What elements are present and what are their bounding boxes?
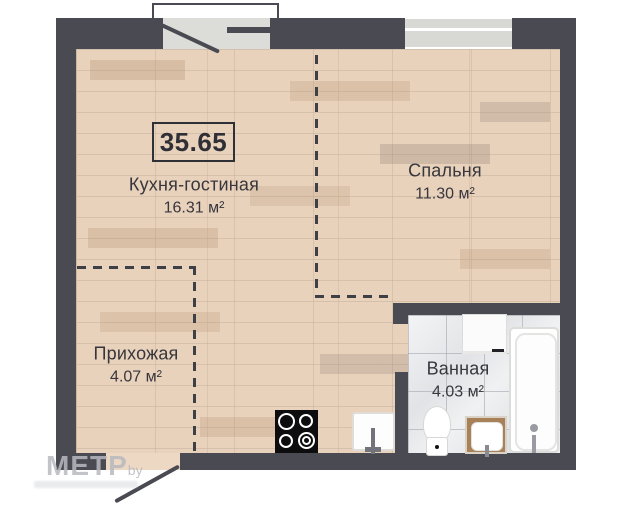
room-area: 11.30 м² xyxy=(408,186,482,204)
plank-shade xyxy=(290,81,410,101)
total-area-value: 35.65 xyxy=(160,127,228,158)
floor-plan: 35.65 Кухня-гостиная 16.31 м² Спальня 11… xyxy=(0,0,635,512)
outer-wall-bottom-right xyxy=(180,453,576,470)
outer-wall-right xyxy=(560,18,576,470)
plank-shade xyxy=(480,102,550,122)
outer-wall-top-left xyxy=(56,18,163,49)
bathroom-wall-door-jamb xyxy=(393,315,408,324)
bathroom-wall-left xyxy=(395,372,408,453)
total-area-box: 35.65 xyxy=(152,122,235,162)
bathtub-faucet-dot xyxy=(530,424,538,432)
room-area: 16.31 м² xyxy=(129,200,259,218)
kitchen-faucet-base xyxy=(365,447,381,452)
stove-icon xyxy=(275,410,318,453)
bedroom-boundary-bottom xyxy=(315,295,395,298)
watermark: МЕТРby xyxy=(46,450,143,482)
bedroom-window xyxy=(405,18,512,49)
washing-machine-icon xyxy=(462,314,507,354)
plank-shade xyxy=(100,312,220,332)
stove-burner xyxy=(299,414,313,428)
balcony-window-sash xyxy=(227,27,270,33)
toilet-button xyxy=(435,445,439,449)
room-label-bedroom: Спальня 11.30 м² xyxy=(408,161,482,204)
room-name: Кухня-гостиная xyxy=(129,175,259,196)
hallway-boundary-right xyxy=(193,266,196,453)
room-label-kitchen-living: Кухня-гостиная 16.31 м² xyxy=(129,175,259,218)
room-label-hallway: Прихожая 4.07 м² xyxy=(93,344,178,387)
washing-machine-handle xyxy=(492,349,504,352)
watermark-tagline-blur xyxy=(34,481,138,488)
plank-shade xyxy=(460,249,550,269)
stove-burner xyxy=(279,434,293,448)
outer-wall-top-right xyxy=(512,18,576,49)
room-area: 4.03 м² xyxy=(427,384,490,402)
room-name: Спальня xyxy=(408,161,482,182)
plank-shade xyxy=(90,60,185,80)
outer-wall-left xyxy=(56,18,76,470)
stove-burner-inner-ring xyxy=(302,436,311,445)
balcony-outline xyxy=(152,3,279,18)
window-pane-inner xyxy=(405,31,512,47)
watermark-suffix: by xyxy=(128,462,143,478)
room-name: Прихожая xyxy=(93,344,178,365)
toilet-icon xyxy=(423,406,451,456)
stove-burner-double xyxy=(298,432,315,449)
room-name: Ванная xyxy=(427,359,490,380)
plank-shade xyxy=(88,228,218,248)
room-area: 4.07 м² xyxy=(93,369,178,387)
vanity-sink-icon xyxy=(465,416,507,454)
room-label-bathroom: Ванная 4.03 м² xyxy=(427,359,490,402)
bedroom-boundary-left xyxy=(315,55,318,293)
outer-wall-top-middle xyxy=(270,18,405,49)
stove-burner xyxy=(278,413,295,430)
bathtub-basin xyxy=(515,333,557,451)
watermark-brand: МЕТР xyxy=(46,450,128,481)
vanity-faucet xyxy=(485,445,489,457)
hallway-boundary-top xyxy=(77,266,196,269)
plank-shade xyxy=(250,186,350,206)
bathtub-faucet-stem xyxy=(532,435,536,453)
kitchen-sink-icon xyxy=(352,412,395,451)
bathtub-icon xyxy=(509,327,559,453)
window-pane-outer xyxy=(405,19,512,28)
